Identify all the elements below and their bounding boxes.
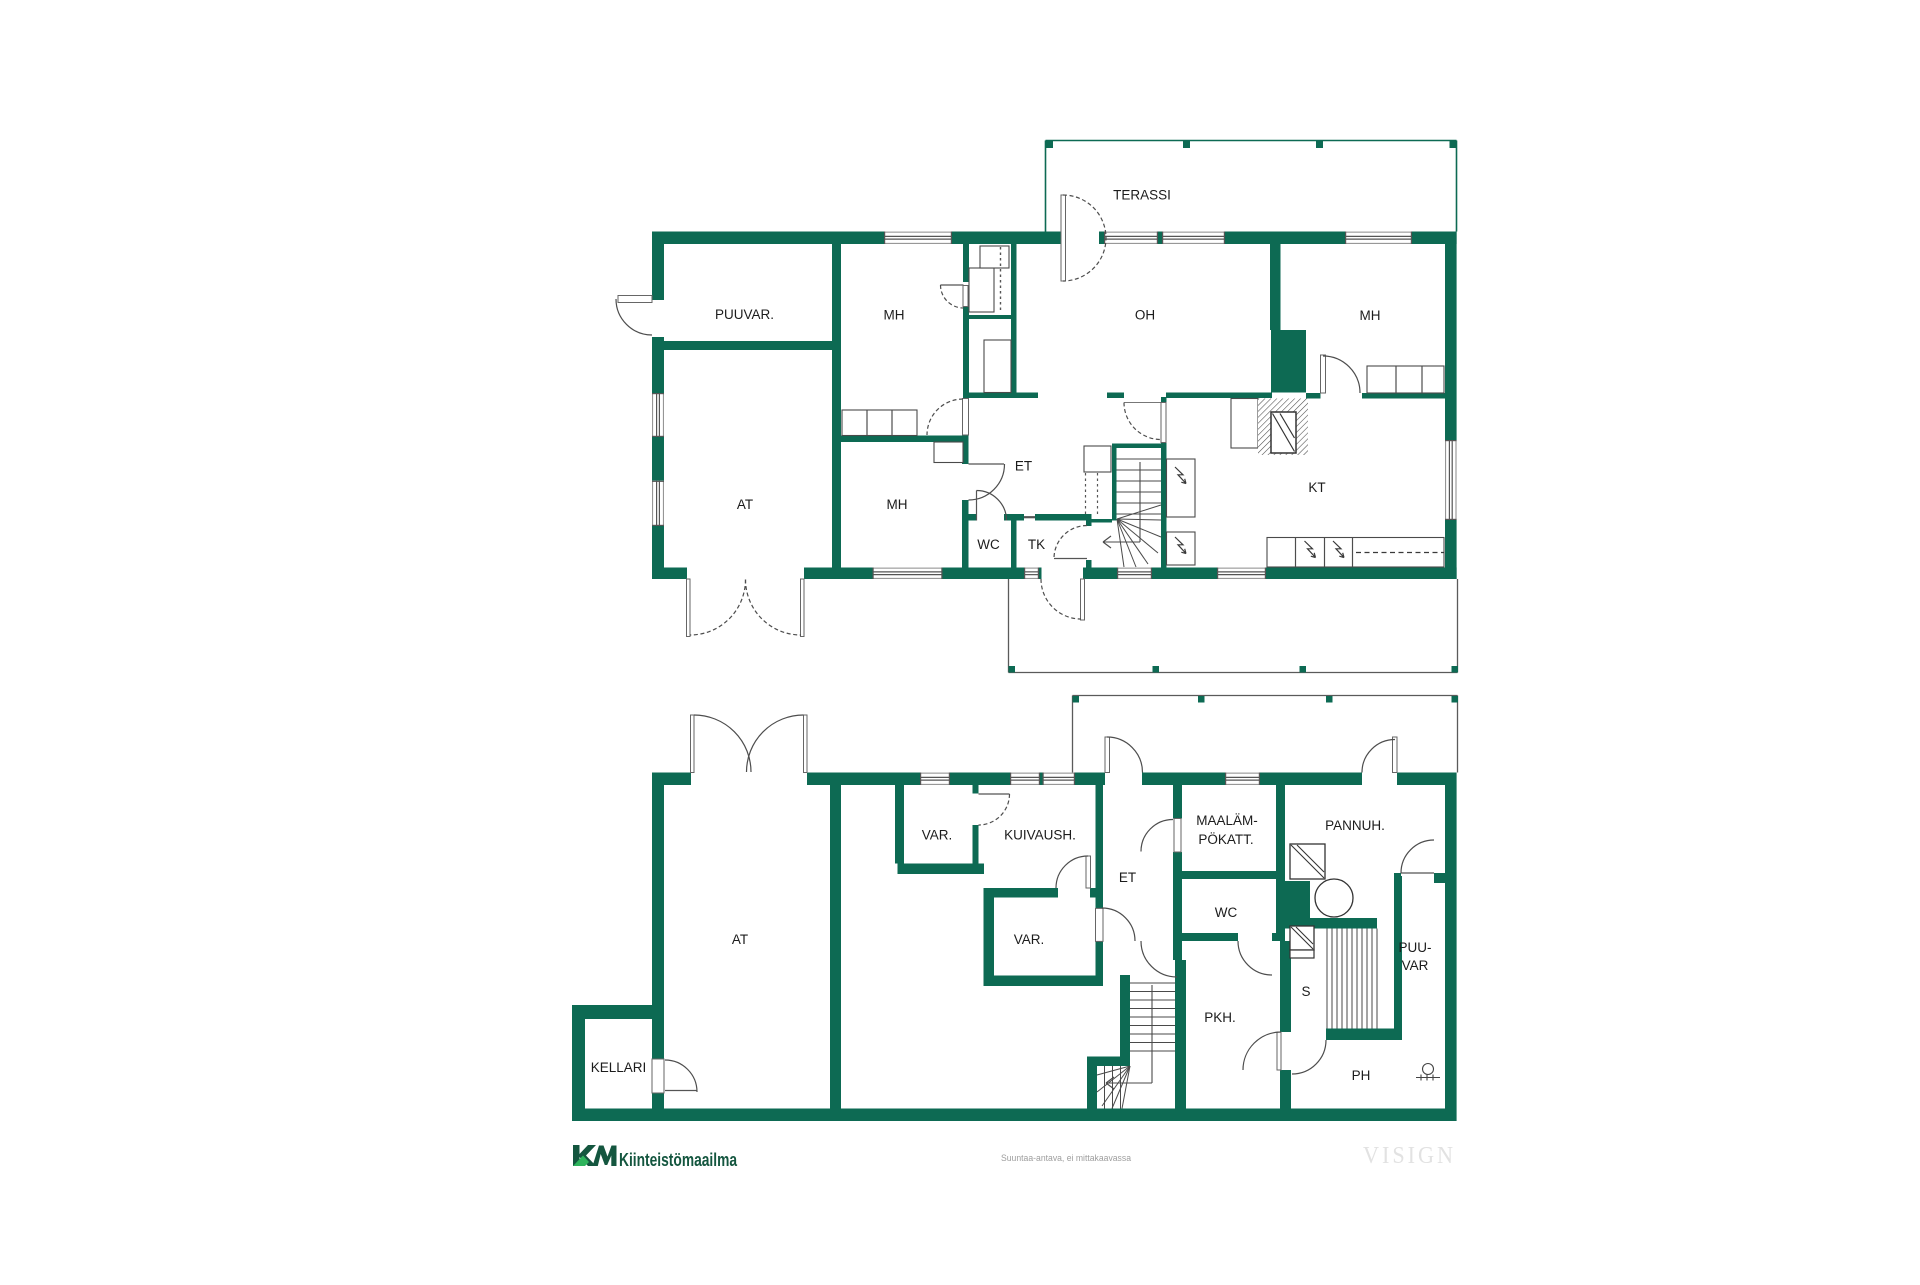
- svg-text:OH: OH: [1135, 308, 1155, 323]
- svg-text:Kiinteistömaailma: Kiinteistömaailma: [619, 1150, 738, 1170]
- svg-text:WC: WC: [1215, 905, 1238, 920]
- svg-text:VAR: VAR: [1402, 958, 1429, 973]
- svg-text:VAR.: VAR.: [1014, 932, 1045, 947]
- svg-text:KELLARI: KELLARI: [591, 1060, 647, 1075]
- svg-text:PH: PH: [1352, 1068, 1371, 1083]
- svg-text:TERASSI: TERASSI: [1113, 188, 1171, 203]
- svg-text:PUU-: PUU-: [1399, 940, 1432, 955]
- svg-text:TK: TK: [1028, 537, 1045, 552]
- svg-text:PÖKATT.: PÖKATT.: [1198, 832, 1253, 847]
- svg-text:MAALÄM-: MAALÄM-: [1196, 813, 1258, 828]
- svg-text:Suuntaa-antava, ei mittakaavas: Suuntaa-antava, ei mittakaavassa: [1001, 1153, 1131, 1163]
- svg-text:AT: AT: [732, 932, 748, 947]
- svg-text:VAR.: VAR.: [922, 828, 953, 843]
- svg-text:PANNUH.: PANNUH.: [1325, 818, 1385, 833]
- svg-text:ET: ET: [1119, 870, 1136, 885]
- svg-text:MH: MH: [887, 497, 908, 512]
- svg-text:WC: WC: [977, 537, 1000, 552]
- svg-text:ET: ET: [1015, 459, 1032, 474]
- svg-text:S: S: [1301, 984, 1310, 999]
- svg-text:KUIVAUSH.: KUIVAUSH.: [1004, 828, 1076, 843]
- svg-text:MH: MH: [884, 308, 905, 323]
- svg-text:PKH.: PKH.: [1204, 1010, 1236, 1025]
- svg-text:VISIGN: VISIGN: [1363, 1143, 1456, 1169]
- svg-text:AT: AT: [737, 497, 753, 512]
- svg-text:MH: MH: [1360, 308, 1381, 323]
- svg-text:PUUVAR.: PUUVAR.: [715, 307, 774, 322]
- svg-text:KT: KT: [1308, 480, 1325, 495]
